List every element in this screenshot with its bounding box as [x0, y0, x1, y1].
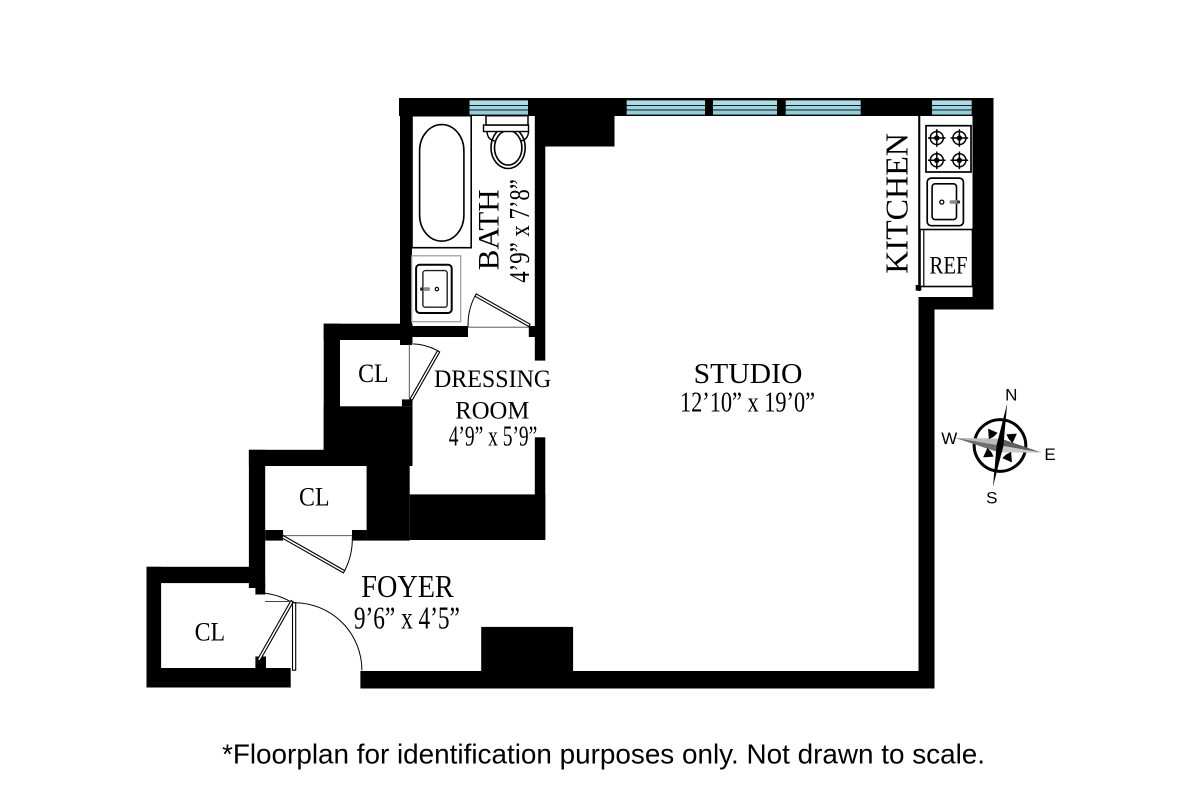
svg-text:W: W — [941, 429, 957, 448]
svg-text:CL: CL — [299, 483, 330, 512]
svg-text:FOYER: FOYER — [361, 568, 454, 604]
svg-text:4’9” x 7’8”: 4’9” x 7’8” — [504, 179, 536, 283]
svg-text:S: S — [986, 489, 997, 508]
svg-text:KITCHEN: KITCHEN — [879, 133, 915, 274]
svg-text:E: E — [1044, 445, 1055, 464]
svg-text:STUDIO: STUDIO — [694, 359, 803, 390]
svg-text:REF: REF — [930, 253, 968, 280]
svg-text:9’6” x 4’5”: 9’6” x 4’5” — [354, 600, 460, 636]
svg-text:BATH: BATH — [472, 189, 505, 270]
svg-text:CL: CL — [195, 617, 226, 646]
svg-text:4’9” x 5’9”: 4’9” x 5’9” — [449, 421, 538, 452]
svg-text:DRESSING: DRESSING — [434, 366, 551, 393]
svg-text:*Floorplan for identification: *Floorplan for identification purposes o… — [222, 738, 985, 769]
svg-text:CL: CL — [358, 359, 389, 388]
svg-text:12’10” x 19’0”: 12’10” x 19’0” — [680, 388, 815, 419]
svg-text:N: N — [1005, 385, 1017, 404]
svg-text:ROOM: ROOM — [455, 397, 529, 424]
